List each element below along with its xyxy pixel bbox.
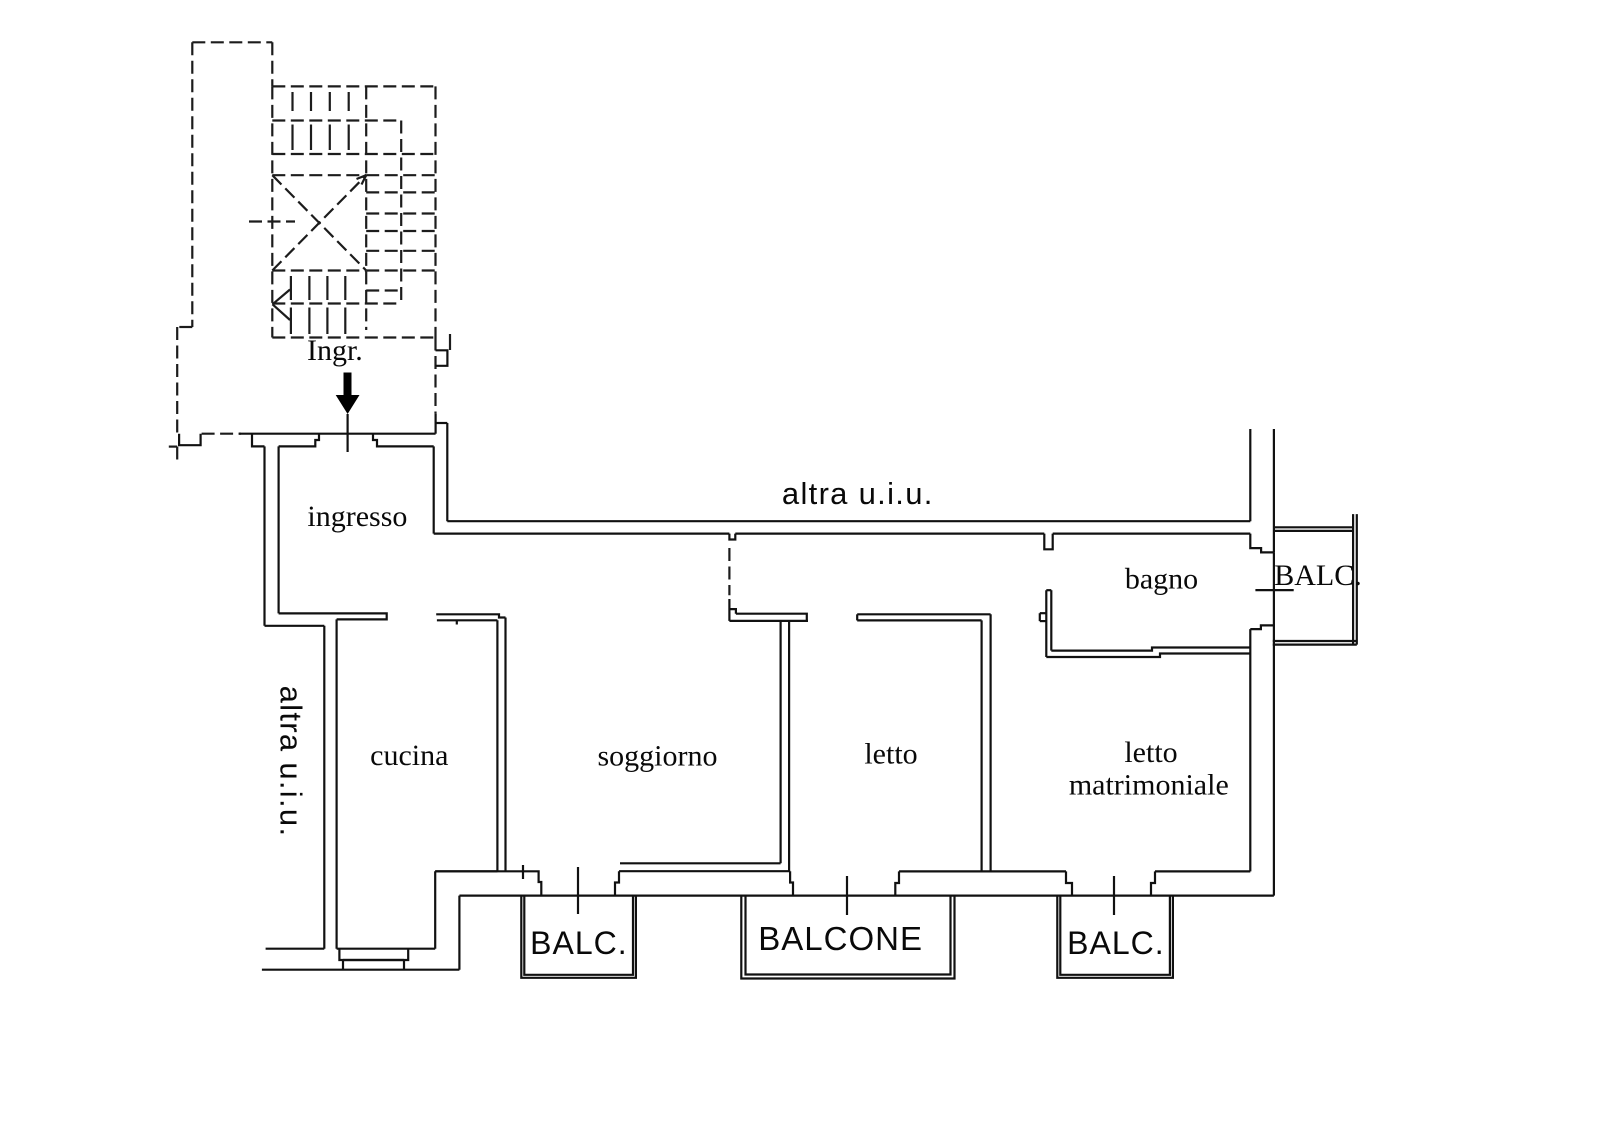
svg-text:letto: letto [864,738,917,771]
svg-text:BALCONE: BALCONE [758,920,923,957]
svg-text:Ingr.: Ingr. [307,334,363,367]
svg-text:BALC.: BALC. [1067,925,1164,961]
svg-text:altra u.i.u.: altra u.i.u. [782,476,934,511]
svg-text:BALC.: BALC. [1274,559,1362,592]
svg-text:BALC.: BALC. [530,925,627,961]
svg-text:letto: letto [1124,736,1177,769]
svg-text:ingresso: ingresso [307,500,407,533]
svg-text:cucina: cucina [370,739,448,772]
svg-text:matrimoniale: matrimoniale [1069,769,1229,802]
svg-text:altra u.i.u.: altra u.i.u. [274,686,309,838]
svg-text:bagno: bagno [1125,563,1198,596]
svg-text:soggiorno: soggiorno [598,740,718,773]
